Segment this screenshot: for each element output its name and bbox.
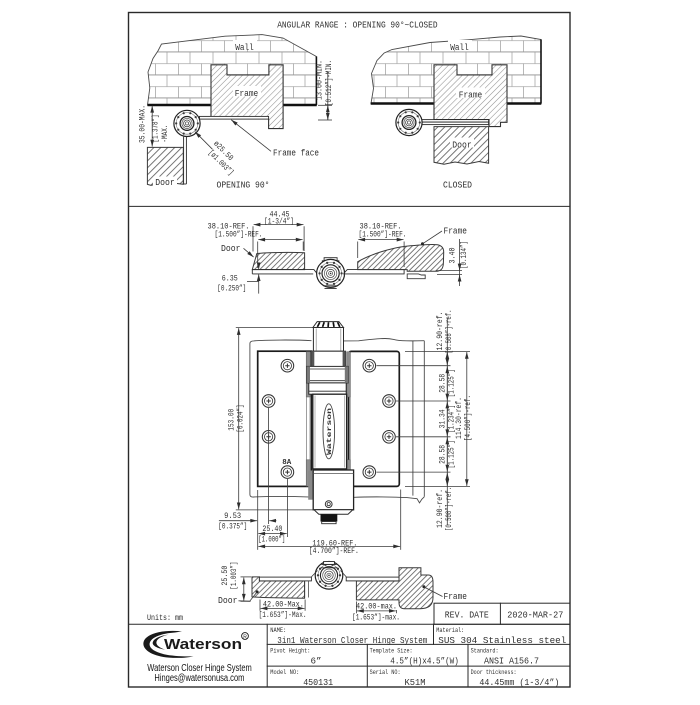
- svg-text:Door: Door: [221, 244, 241, 254]
- svg-text:[1.653”]-Max.: [1.653”]-Max.: [259, 611, 307, 620]
- svg-text:[1-3/4”]: [1-3/4”]: [264, 217, 294, 226]
- svg-text:[1.000”]: [1.000”]: [258, 536, 285, 545]
- svg-text:[0.250”]: [0.250”]: [217, 285, 246, 294]
- svg-text:ANGULAR RANGE : OPENING 90°~CL: ANGULAR RANGE : OPENING 90°~CLOSED: [277, 19, 438, 30]
- svg-text:[1.003”]: [1.003”]: [230, 562, 239, 590]
- svg-text:153.00: 153.00: [228, 409, 237, 431]
- svg-text:31.34: 31.34: [438, 409, 447, 428]
- svg-text:12.90-ref.: 12.90-ref.: [436, 312, 445, 351]
- svg-text:Serial NO:: Serial NO:: [370, 669, 401, 676]
- svg-text:6.35: 6.35: [222, 275, 238, 284]
- svg-text:[0.508”]-ref.: [0.508”]-ref.: [445, 310, 454, 354]
- svg-text:NAME:: NAME:: [270, 627, 286, 634]
- svg-text:28.58: 28.58: [438, 445, 447, 464]
- svg-text:Door: Door: [155, 178, 175, 188]
- svg-text:9.53: 9.53: [224, 512, 241, 521]
- svg-text:[4.700”]-REF.: [4.700”]-REF.: [309, 547, 359, 556]
- svg-text:K51M: K51M: [405, 677, 426, 688]
- svg-text:450131: 450131: [303, 677, 333, 688]
- svg-text:Waterson: Waterson: [164, 636, 242, 653]
- svg-text:Standard:: Standard:: [471, 647, 499, 654]
- svg-text:Frame face: Frame face: [273, 148, 319, 158]
- svg-text:[1.125”]: [1.125”]: [447, 369, 456, 397]
- svg-text:REV. DATE: REV. DATE: [445, 610, 489, 621]
- svg-text:44.45mm (1-3/4”): 44.45mm (1-3/4”): [479, 677, 559, 688]
- svg-text:42.00-max.: 42.00-max.: [356, 603, 397, 612]
- svg-text:Frame: Frame: [459, 90, 483, 100]
- svg-text:114.30-ref.: 114.30-ref.: [455, 397, 464, 439]
- svg-text:6”: 6”: [310, 655, 321, 666]
- svg-text:25.50: 25.50: [221, 565, 230, 585]
- svg-text:[1.653”]-max.: [1.653”]-max.: [352, 613, 400, 622]
- svg-text:[0.508”]-ref.: [0.508”]-ref.: [445, 487, 454, 531]
- svg-text:[1.378”]: [1.378”]: [151, 115, 160, 143]
- svg-text:Door: Door: [452, 140, 472, 150]
- svg-text:Model NO:: Model NO:: [270, 669, 299, 676]
- svg-text:[6.024”]: [6.024”]: [237, 405, 246, 433]
- svg-text:8A: 8A: [282, 459, 291, 467]
- svg-text:-MAX.: -MAX.: [161, 125, 170, 143]
- svg-text:12.90-ref.: 12.90-ref.: [436, 489, 445, 528]
- svg-text:13.00-MIN.: 13.00-MIN.: [315, 60, 324, 100]
- svg-text:2020-MAR-27: 2020-MAR-27: [507, 610, 563, 621]
- svg-text:Wall: Wall: [235, 43, 254, 53]
- svg-text:35.00-MAX.: 35.00-MAX.: [139, 105, 148, 143]
- svg-text:Units: mm: Units: mm: [147, 613, 183, 623]
- svg-text:[1.500”]-REF.: [1.500”]-REF.: [359, 231, 407, 240]
- svg-text:Hinges@watersonusa.com: Hinges@watersonusa.com: [154, 673, 244, 684]
- svg-text:ANSI A156.7: ANSI A156.7: [484, 655, 539, 666]
- svg-text:[1.125”]: [1.125”]: [447, 440, 456, 468]
- svg-text:Pivot Height:: Pivot Height:: [270, 647, 310, 654]
- svg-text:3.40: 3.40: [449, 247, 458, 263]
- svg-text:OPENING 90°: OPENING 90°: [217, 179, 270, 190]
- svg-text:Material:: Material:: [436, 627, 464, 634]
- svg-text:Door thickness:: Door thickness:: [471, 669, 517, 676]
- svg-text:Waterson: Waterson: [326, 408, 333, 455]
- svg-text:3in1 Waterson Closer Hinge Sys: 3in1 Waterson Closer Hinge System: [277, 635, 427, 646]
- svg-text:Frame: Frame: [444, 592, 468, 602]
- svg-text:[0.134”]: [0.134”]: [460, 241, 469, 269]
- svg-text:Template Size:: Template Size:: [370, 647, 413, 654]
- svg-text:Frame: Frame: [444, 226, 468, 236]
- svg-text:25.40: 25.40: [262, 525, 282, 534]
- svg-text:[1.500”]-REF.: [1.500”]-REF.: [215, 231, 263, 240]
- svg-text:28.58: 28.58: [438, 374, 447, 393]
- svg-text:SUS 304 Stainless steel: SUS 304 Stainless steel: [438, 635, 566, 646]
- svg-text:CLOSED: CLOSED: [443, 179, 472, 190]
- svg-text:Wall: Wall: [450, 43, 469, 53]
- svg-text:[4.500”]-ref.: [4.500”]-ref.: [464, 395, 473, 441]
- svg-text:Door: Door: [218, 596, 238, 606]
- svg-text:R: R: [243, 634, 247, 640]
- svg-text:[0.375”]: [0.375”]: [218, 522, 247, 531]
- svg-text:[0.512”]-MIN.: [0.512”]-MIN.: [325, 60, 334, 106]
- svg-text:42.00-Max.: 42.00-Max.: [263, 600, 304, 609]
- svg-text:Frame: Frame: [235, 89, 259, 99]
- svg-text:4.5”(H)x4.5”(W): 4.5”(H)x4.5”(W): [390, 655, 459, 666]
